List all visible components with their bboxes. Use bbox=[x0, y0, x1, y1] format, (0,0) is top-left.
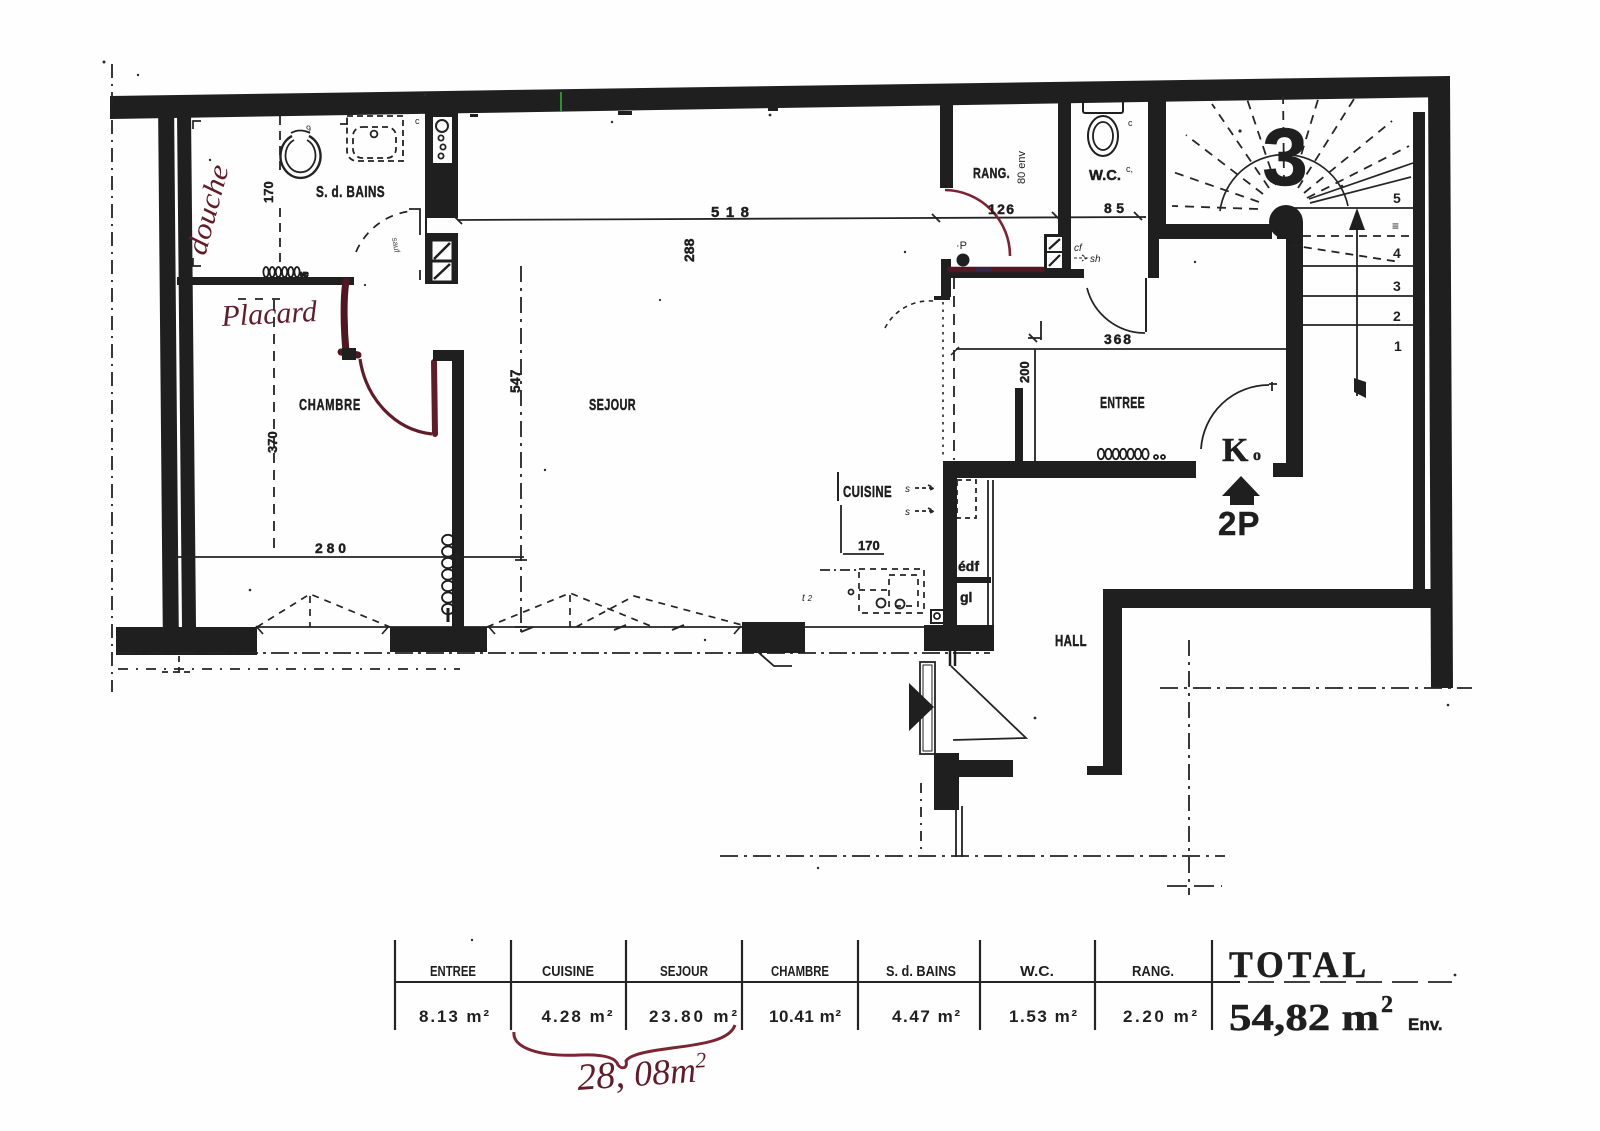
svg-text:RANG.: RANG. bbox=[973, 166, 1010, 182]
svg-text:TOTAL: TOTAL bbox=[1229, 945, 1370, 986]
svg-text:CUISINE: CUISINE bbox=[542, 964, 594, 980]
svg-text:sh: sh bbox=[1090, 254, 1101, 265]
svg-text:ENTREE: ENTREE bbox=[430, 964, 476, 980]
svg-text:K: K bbox=[1222, 432, 1249, 469]
svg-text:vc: vc bbox=[300, 270, 308, 279]
svg-text:3: 3 bbox=[1262, 112, 1308, 203]
svg-text:2.20 m²: 2.20 m² bbox=[1123, 1007, 1197, 1026]
svg-text:S. d. BAINS: S. d. BAINS bbox=[886, 964, 956, 980]
svg-text:ENTREE: ENTREE bbox=[1100, 395, 1145, 412]
svg-text:c: c bbox=[1128, 118, 1133, 128]
svg-text:SEJOUR: SEJOUR bbox=[660, 964, 708, 980]
svg-text:54,82 m: 54,82 m bbox=[1229, 997, 1379, 1039]
svg-text:o: o bbox=[1253, 447, 1261, 464]
svg-text:CHAMBRE: CHAMBRE bbox=[299, 397, 361, 414]
svg-text:4.28 m²: 4.28 m² bbox=[542, 1007, 613, 1026]
svg-text:2: 2 bbox=[1381, 992, 1393, 1018]
svg-text:5: 5 bbox=[1393, 190, 1401, 206]
svg-text:W.C.: W.C. bbox=[1020, 964, 1054, 980]
svg-text:≡: ≡ bbox=[1392, 219, 1399, 233]
svg-text:W.C.: W.C. bbox=[1089, 168, 1121, 184]
svg-text:·P: ·P bbox=[956, 240, 967, 252]
svg-text:4.47 m²: 4.47 m² bbox=[892, 1007, 960, 1026]
svg-text:2P: 2P bbox=[1218, 505, 1260, 542]
svg-text:S. d. BAINS: S. d. BAINS bbox=[316, 184, 385, 201]
svg-text:4: 4 bbox=[1393, 245, 1401, 261]
svg-text:23.80 m²: 23.80 m² bbox=[649, 1007, 737, 1026]
svg-text:80 env: 80 env bbox=[1016, 150, 1028, 184]
svg-text:9: 9 bbox=[306, 124, 311, 134]
svg-text:s: s bbox=[905, 484, 910, 495]
svg-text:10.41 m²: 10.41 m² bbox=[769, 1007, 841, 1026]
svg-text:280: 280 bbox=[315, 540, 346, 556]
svg-text:c: c bbox=[415, 116, 420, 126]
svg-text:Placard: Placard bbox=[220, 295, 319, 333]
svg-text:2: 2 bbox=[1393, 308, 1401, 324]
svg-text:126: 126 bbox=[988, 201, 1014, 217]
svg-text:t 2: t 2 bbox=[802, 593, 813, 604]
svg-text:288: 288 bbox=[681, 238, 697, 262]
svg-text:547: 547 bbox=[507, 369, 523, 393]
svg-text:Env.: Env. bbox=[1408, 1015, 1443, 1034]
svg-text:8.13 m²: 8.13 m² bbox=[419, 1007, 489, 1026]
svg-text:368: 368 bbox=[1104, 331, 1131, 347]
svg-text:cf: cf bbox=[1074, 243, 1083, 254]
svg-text:CUISINE: CUISINE bbox=[843, 484, 892, 501]
svg-text:1.53 m²: 1.53 m² bbox=[1009, 1007, 1077, 1026]
svg-text:s: s bbox=[905, 507, 910, 518]
svg-text:CHAMBRE: CHAMBRE bbox=[771, 964, 829, 980]
svg-text:SEJOUR: SEJOUR bbox=[589, 397, 636, 414]
svg-text:518: 518 bbox=[711, 204, 749, 221]
svg-text:3: 3 bbox=[1393, 278, 1401, 294]
svg-text:c,: c, bbox=[1126, 164, 1133, 174]
svg-text:RANG.: RANG. bbox=[1132, 964, 1174, 980]
svg-text:HALL: HALL bbox=[1055, 633, 1087, 650]
svg-text:édf: édf bbox=[958, 558, 979, 574]
svg-text:170: 170 bbox=[261, 181, 276, 203]
svg-text:200: 200 bbox=[1017, 361, 1032, 383]
svg-text:1: 1 bbox=[1394, 338, 1402, 354]
svg-text:170: 170 bbox=[858, 538, 880, 553]
svg-text:370: 370 bbox=[265, 431, 280, 453]
svg-text:gl: gl bbox=[960, 589, 972, 605]
